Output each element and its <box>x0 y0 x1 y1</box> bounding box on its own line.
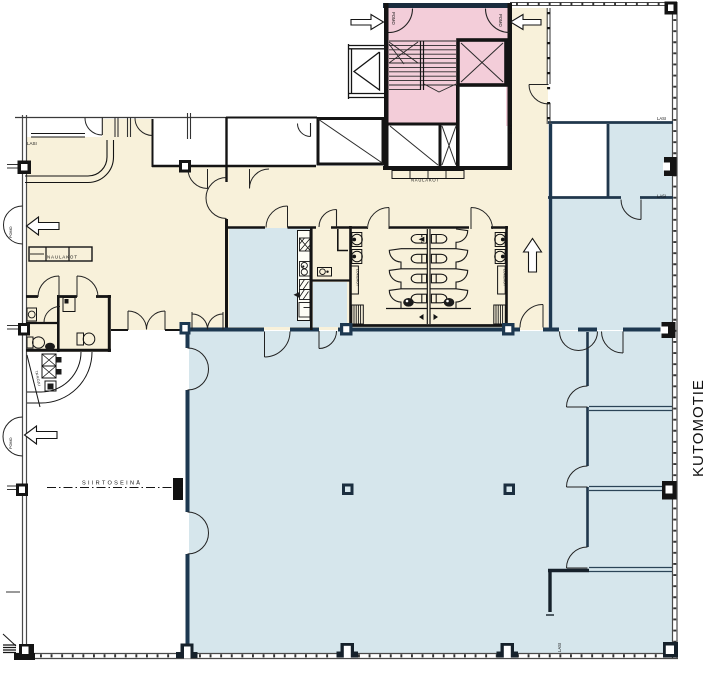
svg-text:LOKEROT: LOKEROT <box>356 269 360 287</box>
svg-text:POMO: POMO <box>9 226 13 238</box>
svg-text:TUAR: TUAR <box>508 124 512 135</box>
svg-text:NAULAKOT: NAULAKOT <box>411 178 439 183</box>
svg-text:LASI: LASI <box>557 643 562 652</box>
svg-text:LASI: LASI <box>657 116 666 121</box>
svg-text:POMO: POMO <box>498 14 503 28</box>
svg-text:POMO: POMO <box>9 437 13 449</box>
svg-text:NAULAKOT: NAULAKOT <box>47 255 77 260</box>
svg-text:KUTOMOTIE: KUTOMOTIE <box>690 379 707 477</box>
svg-text:LASI: LASI <box>27 141 37 146</box>
svg-text:POMO: POMO <box>391 12 396 26</box>
svg-text:LASI: LASI <box>657 194 666 199</box>
svg-text:LOKEROT: LOKEROT <box>502 269 506 287</box>
